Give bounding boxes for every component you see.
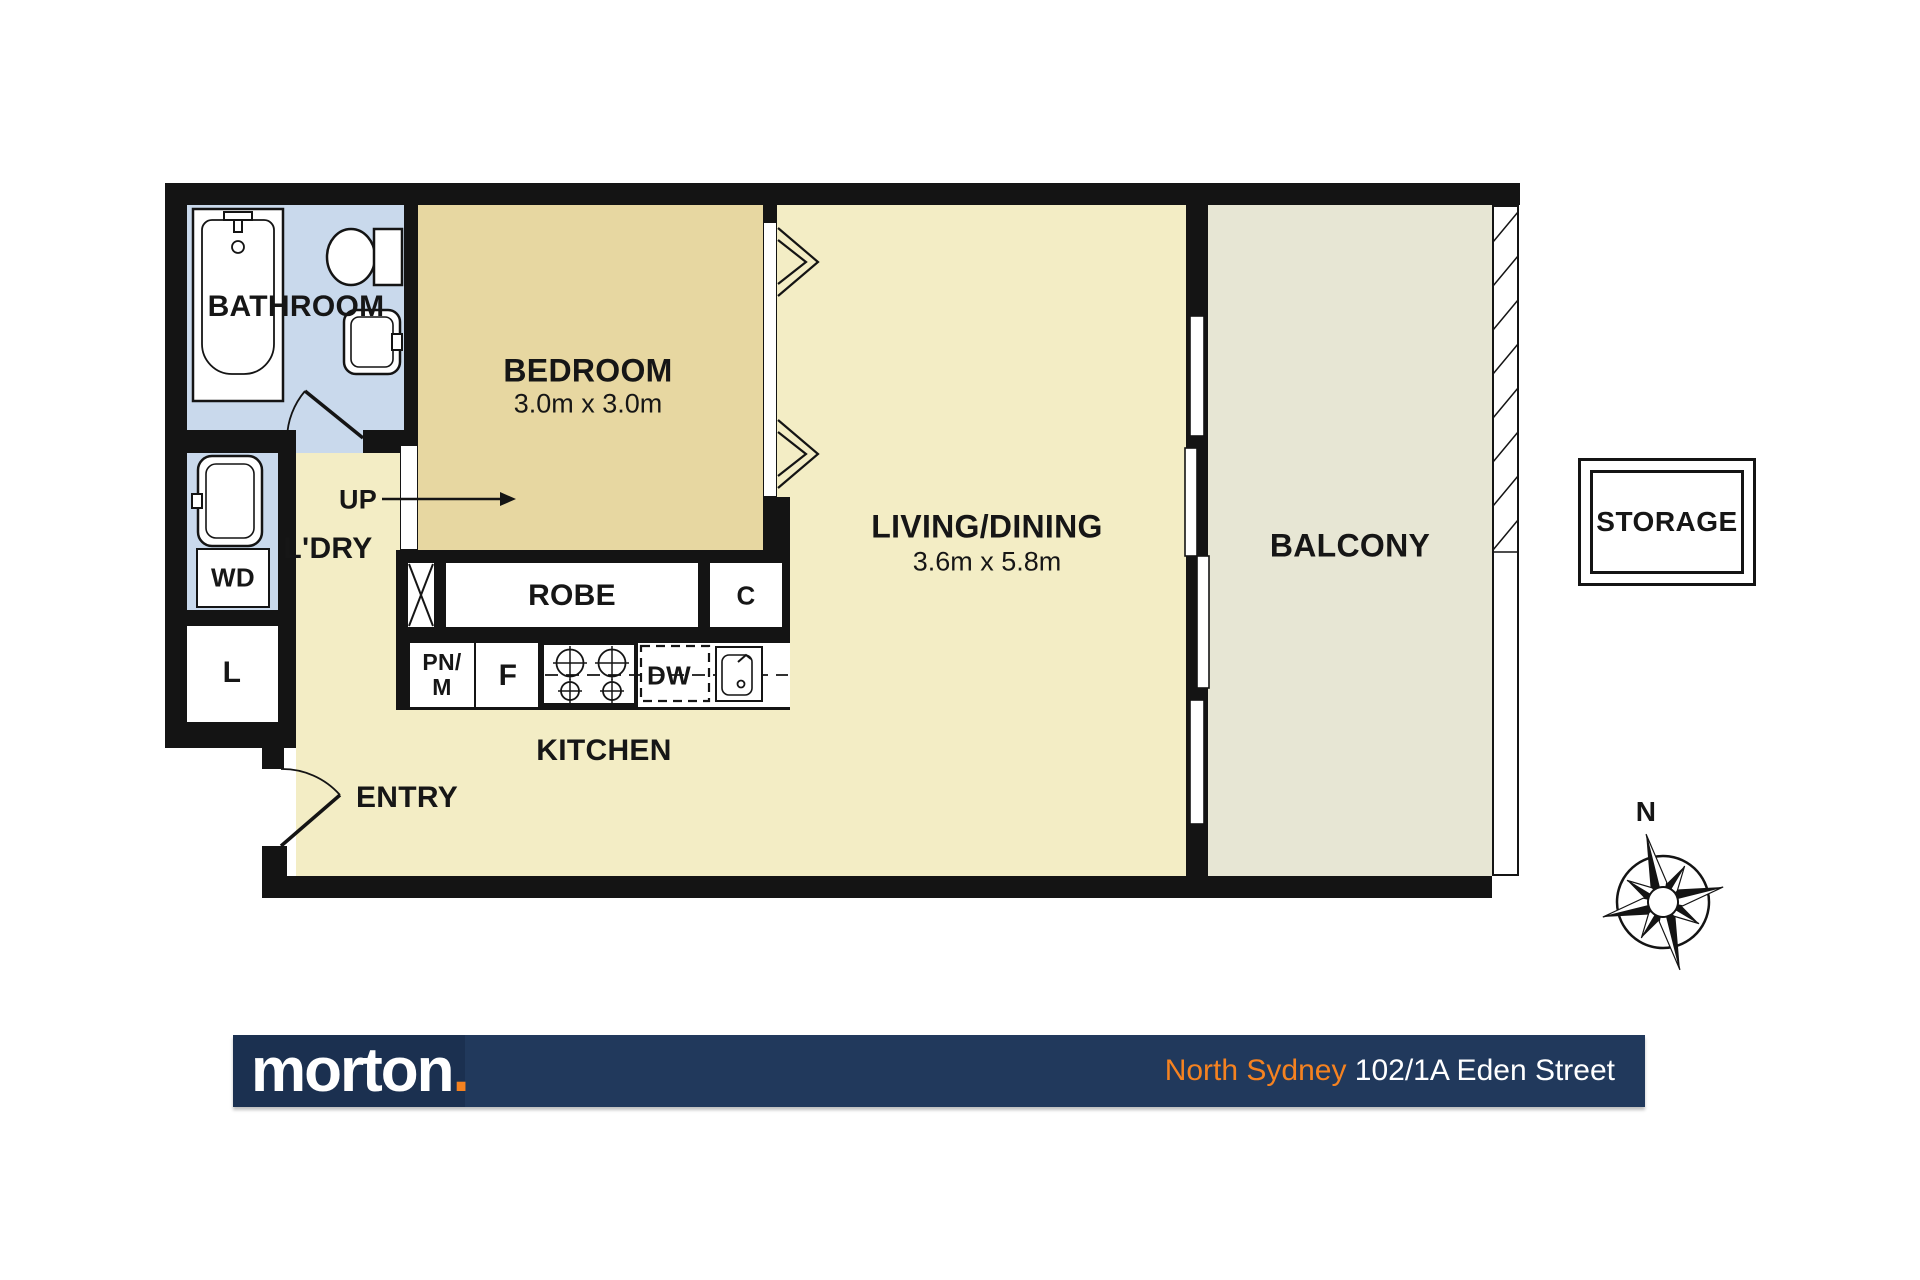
- wall-left: [165, 183, 187, 748]
- wall-balcony-partition: [1186, 205, 1208, 876]
- wall-wd-linen-divider: [187, 610, 296, 626]
- room-label-balcony: BALCONY: [1270, 528, 1430, 565]
- property-address: North Sydney 102/1A Eden Street: [1165, 1054, 1615, 1088]
- storage-box: STORAGE: [1578, 458, 1756, 586]
- property-suburb: North Sydney: [1165, 1054, 1347, 1087]
- sink-bench-zone: [712, 643, 790, 707]
- marker-up: UP: [339, 485, 377, 516]
- marker-dishwasher: DW: [647, 661, 691, 692]
- duct-box: [408, 563, 434, 627]
- wall-stair-connector: [400, 430, 418, 445]
- wall-bathroom-south-left: [187, 430, 285, 453]
- marker-north: N: [1636, 796, 1657, 828]
- wall-top: [165, 183, 1520, 205]
- footer-bar: morton. North Sydney 102/1A Eden Street: [233, 1035, 1645, 1107]
- wall-strip-east: [278, 430, 296, 748]
- room-label-entry: ENTRY: [356, 781, 458, 815]
- marker-fridge: F: [499, 659, 518, 693]
- floor-plan-page: BATHROOM BEDROOM 3.0m x 3.0m LIVING/DINI…: [0, 0, 1920, 1280]
- room-label-bathroom: BATHROOM: [208, 290, 385, 324]
- room-dims-living: 3.6m x 5.8m: [913, 547, 1062, 578]
- brand-wordmark: morton: [251, 1036, 453, 1105]
- marker-washer-dryer: WD: [211, 563, 255, 594]
- wall-bottom: [262, 876, 1492, 898]
- wall-bathroom-east: [404, 183, 418, 430]
- room-dims-bedroom: 3.0m x 3.0m: [514, 389, 663, 420]
- marker-pantry-micro: PN/ M: [422, 650, 461, 700]
- wall-bedroom-east-lower: [763, 497, 790, 550]
- storage-box-inner: STORAGE: [1590, 470, 1744, 574]
- room-label-bedroom: BEDROOM: [503, 353, 672, 390]
- wall-under-linen: [165, 722, 296, 748]
- compass-icon: [1586, 819, 1740, 985]
- bedroom-door-track: [763, 222, 777, 497]
- property-street: 102/1A Eden Street: [1355, 1054, 1615, 1087]
- room-label-robe: ROBE: [528, 579, 616, 613]
- brand-dot: .: [453, 1036, 468, 1105]
- room-label-kitchen: KITCHEN: [536, 734, 671, 768]
- room-label-laundry: L'DRY: [283, 532, 372, 566]
- wall-bedroom-door-stub: [763, 205, 777, 222]
- balustrade-strip: [1492, 205, 1519, 876]
- stair-opening: [400, 445, 418, 550]
- marker-cupboard: C: [736, 581, 755, 612]
- bathroom-floor: [187, 205, 404, 453]
- room-label-storage: STORAGE: [1596, 506, 1737, 538]
- wall-entry-jamb-top: [262, 748, 284, 769]
- marker-linen: L: [223, 656, 242, 690]
- room-label-living: LIVING/DINING: [871, 509, 1102, 546]
- brand-logo: morton.: [251, 1040, 468, 1102]
